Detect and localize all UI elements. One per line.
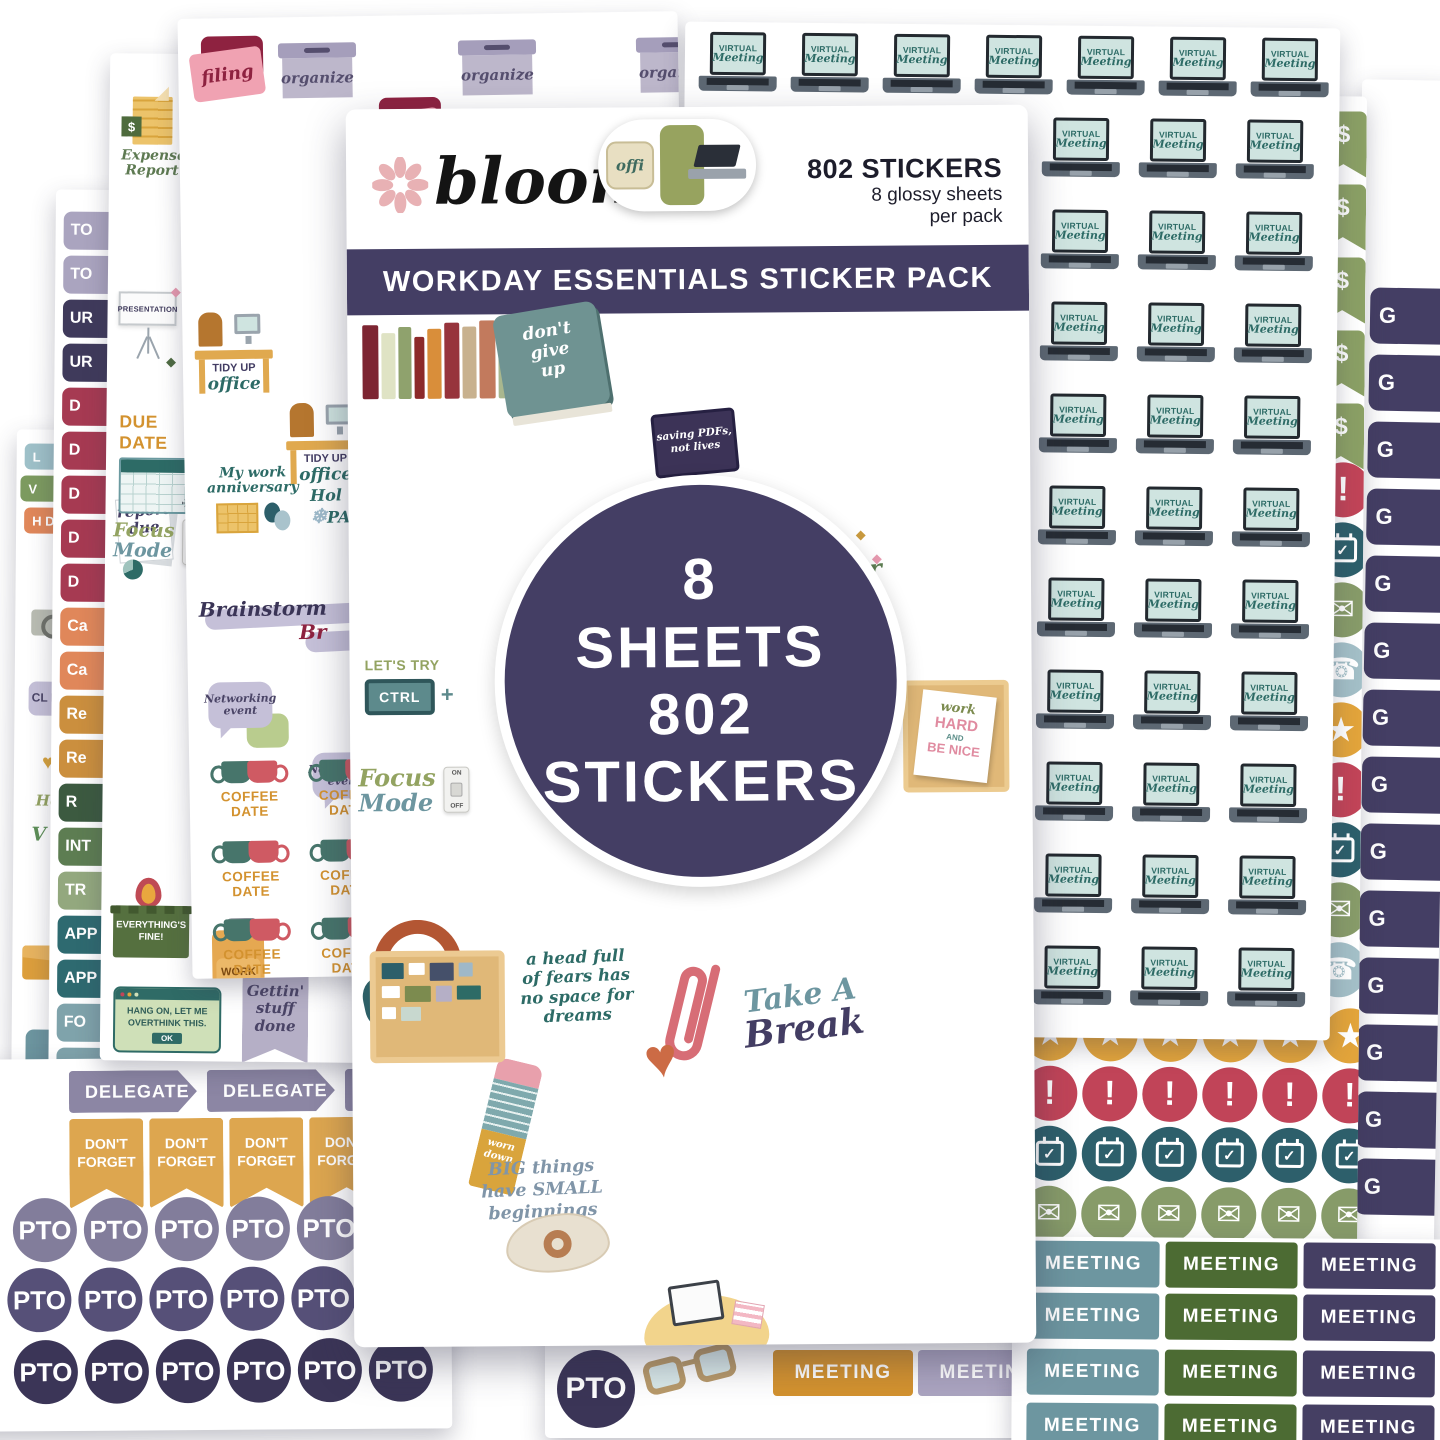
laptop-icon: VIRTUALMeeting <box>1243 487 1299 531</box>
virtual-meeting-sticker: VIRTUALMeeting <box>1042 117 1121 182</box>
calendar-circle-sticker: ✓ <box>1082 1126 1137 1181</box>
virtual-meeting-sticker: VIRTUALMeeting <box>1236 119 1315 184</box>
offi-sticker-graphic: offi <box>606 141 654 189</box>
presentation-sticker: ◆◆ PRESENTATION <box>112 291 183 376</box>
calendar-icon <box>216 503 258 534</box>
work-hard-be-nice-sticker: work HARD AND BE NICE <box>903 680 1010 793</box>
laptop-icon: VIRTUALMeeting <box>1238 947 1294 991</box>
virtual-meeting-sticker: VIRTUALMeeting <box>1137 302 1216 367</box>
partial-meeting-tab: G <box>1364 622 1440 680</box>
meeting-sticker: MEETING <box>1027 1293 1159 1340</box>
laptop-icon: VIRTUALMeeting <box>1240 763 1296 807</box>
coffee-date-sticker: COFFEE DATE <box>209 910 296 979</box>
laptop-icon: VIRTUALMeeting <box>1046 761 1102 805</box>
books-sticker <box>362 320 512 399</box>
mail-circle-sticker: ✉ <box>1201 1187 1256 1242</box>
laptop-icon: VIRTUALMeeting <box>1053 117 1109 161</box>
calendar-icon: ✓ <box>1275 1143 1303 1168</box>
pto-sticker: PTO <box>220 1266 284 1330</box>
pack-title-banner: WORKDAY ESSENTIALS STICKER PACK <box>347 245 1029 316</box>
virtual-meeting-sticker: VIRTUALMeeting <box>1138 210 1217 275</box>
virtual-meeting-sticker: VIRTUALMeeting <box>1038 485 1117 550</box>
gettin-stuff-done-sticker: Gettin'stuffdone <box>242 975 309 1064</box>
laptop-icon: VIRTUALMeeting <box>710 32 766 76</box>
virtual-meeting-sticker: VIRTUALMeeting <box>1131 854 1210 919</box>
pto-sticker: PTO <box>85 1339 149 1403</box>
laptop-icon: VIRTUALMeeting <box>894 34 950 78</box>
virtual-meeting-sticker: VIRTUALMeeting <box>1136 394 1215 459</box>
laptop-icon: VIRTUALMeeting <box>1052 209 1108 253</box>
virtual-meeting-sticker: VIRTUALMeeting <box>791 33 870 98</box>
product-image: L V H D CL H ♥ He V M TO TO UR UR D D D … <box>0 0 1440 1440</box>
laptop-icon: VIRTUALMeeting <box>1247 119 1303 163</box>
pto-sticker: PTO <box>226 1196 290 1260</box>
pto-sticker: PTO <box>291 1266 355 1330</box>
meeting-sticker: MEETING <box>1303 1351 1435 1398</box>
teacup-icon <box>250 918 280 940</box>
dialog-titlebar <box>115 988 219 1000</box>
calendar-icon: ✓ <box>1095 1141 1123 1166</box>
balloon-icon <box>274 510 290 530</box>
pto-sticker: PTO <box>84 1197 148 1261</box>
pto-sticker: PTO <box>297 1196 361 1260</box>
laptop-icon: VIRTUALMeeting <box>1045 853 1101 897</box>
meeting-sticker: MEETING <box>773 1350 913 1396</box>
meeting-sticker: MEETING <box>1165 1350 1297 1397</box>
focus-mode-sticker: FocusMode ONOFF <box>358 765 470 816</box>
sticker-pack-cover: bloom offi 802 STICKERS 8 glossy sheets … <box>346 105 1037 1348</box>
laptop-icon: VIRTUALMeeting <box>1170 37 1226 81</box>
virtual-meeting-sticker: VIRTUALMeeting <box>1036 669 1115 734</box>
dont-forget-sticker: DON'TFORGET <box>69 1118 144 1209</box>
virtual-meeting-sticker: VIRTUALMeeting <box>1231 579 1310 644</box>
calendar-icon: ✓ <box>1215 1142 1243 1167</box>
meeting-sticker: MEETING <box>1165 1242 1297 1289</box>
laptop-icon <box>688 145 746 179</box>
pack-counts: 802 STICKERS 8 glossy sheets per pack <box>762 153 1003 230</box>
partial-meeting-tab: G <box>1365 555 1440 613</box>
laptop-icon: VIRTUALMeeting <box>1146 486 1202 530</box>
calendar-icon: ✓ <box>1035 1141 1063 1166</box>
partial-meeting-tab: G <box>1357 1024 1440 1082</box>
mail-circle-sticker: ✉ <box>1141 1187 1196 1242</box>
mail-icon: ✉ <box>1276 1198 1301 1233</box>
laptop-icon: VIRTUALMeeting <box>986 35 1042 79</box>
laptop-icon: VIRTUALMeeting <box>1245 303 1301 347</box>
corkboard-sticker <box>370 950 506 1063</box>
laptop-icon: VIRTUALMeeting <box>1047 669 1103 713</box>
dont-give-up-book-sticker: don'tgiveup <box>492 300 612 420</box>
take-a-break-sticker: Take A Break <box>738 971 867 1057</box>
ok-button-graphic: OK <box>152 1033 182 1044</box>
virtual-meeting-sticker: VIRTUALMeeting <box>1133 670 1212 735</box>
laptop-icon: VIRTUALMeeting <box>1145 578 1201 622</box>
exclamation-circle-sticker: ! <box>1262 1068 1317 1123</box>
virtual-meeting-sticker: VIRTUALMeeting <box>1234 303 1313 368</box>
virtual-meeting-sticker: VIRTUALMeeting <box>1232 487 1311 552</box>
partial-meeting-tab: G <box>1367 421 1440 479</box>
work-anniversary-sticker: My workanniversary <box>205 465 302 558</box>
dont-forget-sticker: DON'TFORGET <box>229 1117 304 1208</box>
virtual-meeting-sticker: VIRTUALMeeting <box>1040 301 1119 366</box>
laptop-icon: VIRTUALMeeting <box>1144 670 1200 714</box>
virtual-meeting-sticker: VIRTUALMeeting <box>883 34 962 99</box>
pto-sticker: PTO <box>14 1340 78 1404</box>
virtual-meeting-sticker: VIRTUALMeeting <box>1235 211 1314 276</box>
laptop-icon: VIRTUALMeeting <box>1149 210 1205 254</box>
bloom-flower-icon <box>372 157 428 213</box>
holiday-party-sticker: Hol ❄PA <box>310 486 351 526</box>
virtual-meeting-sticker: VIRTUALMeeting <box>1067 36 1146 101</box>
tidy-up-office-sticker: TIDY UP office <box>194 310 273 403</box>
teacup-icon <box>247 761 277 783</box>
laptop-icon: VIRTUALMeeting <box>1147 394 1203 438</box>
delegate-sticker: DELEGATE <box>69 1070 197 1113</box>
mail-icon: ✉ <box>1036 1196 1061 1231</box>
teacup-icon <box>248 841 278 863</box>
pto-sticker: PTO <box>227 1338 291 1402</box>
partial-meeting-tab: G <box>1356 1091 1440 1149</box>
laptop-icon: VIRTUALMeeting <box>802 33 858 77</box>
laptop-icon: VIRTUALMeeting <box>1244 395 1300 439</box>
dont-forget-sticker: DON'TFORGET <box>149 1118 224 1209</box>
virtual-meeting-sticker: VIRTUALMeeting <box>1135 486 1214 551</box>
ctrl-keycap-icon: CTRL <box>365 679 435 715</box>
sheet-count-badge: 8 SHEETS 802 STICKERS <box>493 473 908 888</box>
pto-sticker: PTO <box>155 1197 219 1261</box>
virtual-meeting-sticker: VIRTUALMeeting <box>699 32 778 97</box>
pinned-note: work HARD AND BE NICE <box>913 689 996 783</box>
virtual-meeting-sticker: VIRTUALMeeting <box>1039 393 1118 458</box>
pto-sticker: PTO <box>78 1267 142 1331</box>
partial-meeting-tab: G <box>1370 287 1440 345</box>
virtual-meeting-sticker: VIRTUALMeeting <box>1251 38 1330 103</box>
laptop-icon: VIRTUALMeeting <box>1148 302 1204 346</box>
tape-dispenser-sticker <box>505 1208 616 1289</box>
calendar-circle-sticker: ✓ <box>1262 1128 1317 1183</box>
calendar-circle-sticker: ✓ <box>1142 1127 1197 1182</box>
lets-try-ctrl-sticker: LET'S TRY CTRL+ <box>365 657 460 716</box>
pto-sticker: PTO <box>7 1268 71 1332</box>
meeting-sticker: MEETING <box>1302 1405 1434 1440</box>
meeting-sticker: MEETING <box>1164 1404 1296 1440</box>
eyeglasses-sticker <box>641 1339 761 1438</box>
virtual-meeting-sticker: VIRTUALMeeting <box>1228 855 1307 920</box>
everythings-fine-sticker: EVERYTHING'SFINE! <box>113 879 190 974</box>
laptop-icon: VIRTUALMeeting <box>1141 946 1197 990</box>
exclamation-circle-sticker: ! <box>1142 1067 1197 1122</box>
virtual-meeting-sticker: VIRTUALMeeting <box>1130 946 1209 1011</box>
toggle-switch-icon: ONOFF <box>444 767 470 813</box>
laptop-icon: VIRTUALMeeting <box>1050 393 1106 437</box>
laptop-icon: VIRTUALMeeting <box>1044 945 1100 989</box>
virtual-meeting-sticker: VIRTUALMeeting <box>1134 578 1213 643</box>
exclamation-circle-sticker: ! <box>1082 1066 1137 1121</box>
virtual-meeting-sticker: VIRTUALMeeting <box>1227 947 1306 1012</box>
networking-event-sticker: Networkingevent <box>208 681 289 754</box>
virtual-meeting-sticker: VIRTUALMeeting <box>975 35 1054 100</box>
exclamation-circle-sticker: ! <box>1202 1067 1257 1122</box>
virtual-meeting-sticker: VIRTUALMeeting <box>1037 577 1116 642</box>
partial-meeting-tab: G <box>1354 1158 1440 1216</box>
virtual-meeting-sticker: VIRTUALMeeting <box>1139 118 1218 183</box>
expense-report-sticker: $ ExpenseReport <box>121 96 184 193</box>
meeting-sticker: MEETING <box>1027 1349 1159 1396</box>
fire-icon <box>135 878 161 908</box>
laptop-icon: VIRTUALMeeting <box>1143 762 1199 806</box>
meeting-sticker: MEETING <box>1303 1295 1435 1342</box>
partial-meeting-tab: G <box>1361 756 1440 814</box>
meeting-sticker: MEETING <box>1027 1241 1159 1288</box>
mail-icon: ✉ <box>1156 1197 1181 1232</box>
calendar-circle-sticker: ✓ <box>1202 1127 1257 1182</box>
coffee-date-sticker: COFFEE DATE <box>206 752 293 827</box>
virtual-meeting-sticker: VIRTUALMeeting <box>1041 209 1120 274</box>
filing-folder-sticker: filing <box>191 36 268 101</box>
mail-icon: ✉ <box>1216 1197 1241 1232</box>
laptop-icon: VIRTUALMeeting <box>1241 671 1297 715</box>
hang-tab-graphic: offi <box>598 119 757 212</box>
virtual-meeting-sticker: VIRTUALMeeting <box>1132 762 1211 827</box>
snowflake-glyph: ❄ <box>310 503 327 527</box>
partial-meeting-tab: G <box>1358 957 1440 1015</box>
partial-meeting-tab: G <box>1363 689 1440 747</box>
virtual-meeting-sticker: VIRTUALMeeting <box>1033 945 1112 1010</box>
partial-meeting-tab: G <box>1366 488 1440 546</box>
organize-box-sticker: organize <box>278 42 357 101</box>
organize-box-sticker: organize <box>458 39 537 98</box>
pto-sticker: PTO <box>557 1350 635 1428</box>
calendar-icon: ✓ <box>1155 1142 1183 1167</box>
laptop-icon: VIRTUALMeeting <box>1246 211 1302 255</box>
laptop-icon: VIRTUALMeeting <box>1142 854 1198 898</box>
virtual-meeting-sticker: VIRTUALMeeting <box>1035 761 1114 826</box>
easel-icon <box>147 328 149 354</box>
virtual-meeting-sticker: VIRTUALMeeting <box>1034 853 1113 918</box>
laptop-scene-sticker <box>644 1280 770 1347</box>
mail-circle-sticker: ✉ <box>1081 1186 1136 1241</box>
laptop-icon: VIRTUALMeeting <box>1078 36 1134 80</box>
overthink-dialog-sticker: HANG ON, LET MEOVERTHINK THIS. OK <box>113 986 222 1053</box>
mail-circle-sticker: ✉ <box>1261 1188 1316 1243</box>
virtual-meeting-sticker: VIRTUALMeeting <box>1230 671 1309 736</box>
partial-meeting-tab: G <box>1368 354 1440 412</box>
virtual-meeting-sticker: VIRTUALMeeting <box>1233 395 1312 460</box>
pto-sticker: PTO <box>13 1198 77 1262</box>
laptop-icon: VIRTUALMeeting <box>1242 579 1298 623</box>
pto-sticker: PTO <box>298 1338 362 1402</box>
virtual-meeting-sticker: VIRTUALMeeting <box>1229 763 1308 828</box>
partial-meeting-tab: G <box>1359 890 1440 948</box>
virtual-meeting-sticker: VIRTUALMeeting <box>1159 37 1238 102</box>
laptop-icon: VIRTUALMeeting <box>1049 485 1105 529</box>
meeting-sticker: MEETING <box>1165 1294 1297 1341</box>
laptop-icon: VIRTUALMeeting <box>1239 855 1295 899</box>
pto-sticker: PTO <box>156 1339 220 1403</box>
mail-icon: ✉ <box>1096 1196 1121 1231</box>
sticker-sheet-meeting-grid: MEETING MEETING MEETING MEETING MEETING … <box>1011 1236 1440 1440</box>
meeting-sticker: MEETING <box>1303 1243 1435 1290</box>
meeting-sticker: MEETING <box>1026 1403 1158 1440</box>
head-full-of-fears-quote-sticker: a head fullof fears hasno space fordream… <box>518 945 635 1028</box>
partial-meeting-tab: G <box>1360 823 1440 881</box>
pto-sticker: PTO <box>149 1267 213 1331</box>
laptop-icon: VIRTUALMeeting <box>1048 577 1104 621</box>
delegate-sticker: DELEGATE <box>207 1069 335 1112</box>
coffee-date-sticker: COFFEE DATE <box>207 832 294 907</box>
laptop-icon: VIRTUALMeeting <box>1051 301 1107 345</box>
laptop-icon: VIRTUALMeeting <box>1262 38 1318 82</box>
laptop-icon: VIRTUALMeeting <box>1150 118 1206 162</box>
